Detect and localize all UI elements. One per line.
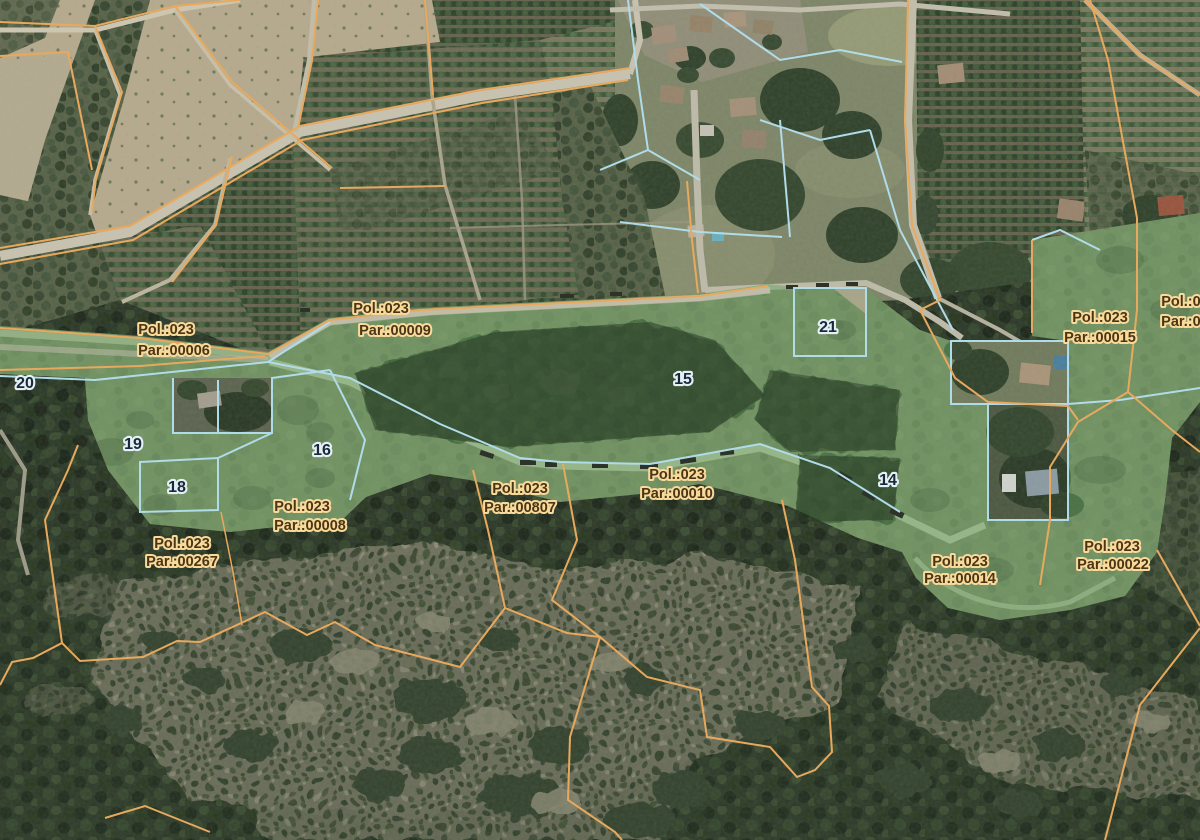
svg-text:Pol.:023: Pol.:023 [492,481,548,497]
svg-text:20: 20 [16,375,34,392]
svg-text:Pol.:023: Pol.:023 [154,536,210,552]
svg-text:Pol.:023: Pol.:023 [932,554,988,570]
svg-text:Par.:00807: Par.:00807 [484,500,556,516]
svg-text:Pol.:023: Pol.:023 [1084,539,1140,555]
svg-text:Par.:00006: Par.:00006 [138,343,210,359]
svg-text:21: 21 [819,319,837,336]
svg-text:Pol.:023: Pol.:023 [138,322,194,338]
svg-text:18: 18 [168,479,186,496]
svg-text:Par.:00015: Par.:00015 [1064,330,1136,346]
svg-text:Par.:00014: Par.:00014 [924,571,996,587]
svg-text:Par.:000: Par.:000 [1161,314,1200,330]
svg-text:Par.:00022: Par.:00022 [1077,557,1149,573]
svg-text:Pol.:023: Pol.:023 [1161,294,1200,310]
svg-text:15: 15 [674,371,692,388]
svg-text:Par.:00009: Par.:00009 [359,323,431,339]
svg-text:Par.:00008: Par.:00008 [274,518,346,534]
svg-text:19: 19 [124,436,142,453]
svg-text:Pol.:023: Pol.:023 [274,499,330,515]
svg-text:Pol.:023: Pol.:023 [1072,310,1128,326]
svg-text:Pol.:023: Pol.:023 [649,467,705,483]
svg-text:Par.:00267: Par.:00267 [146,554,218,570]
svg-text:Par.:00010: Par.:00010 [641,486,713,502]
svg-text:14: 14 [879,472,897,489]
svg-text:Pol.:023: Pol.:023 [353,301,409,317]
svg-text:16: 16 [313,442,331,459]
